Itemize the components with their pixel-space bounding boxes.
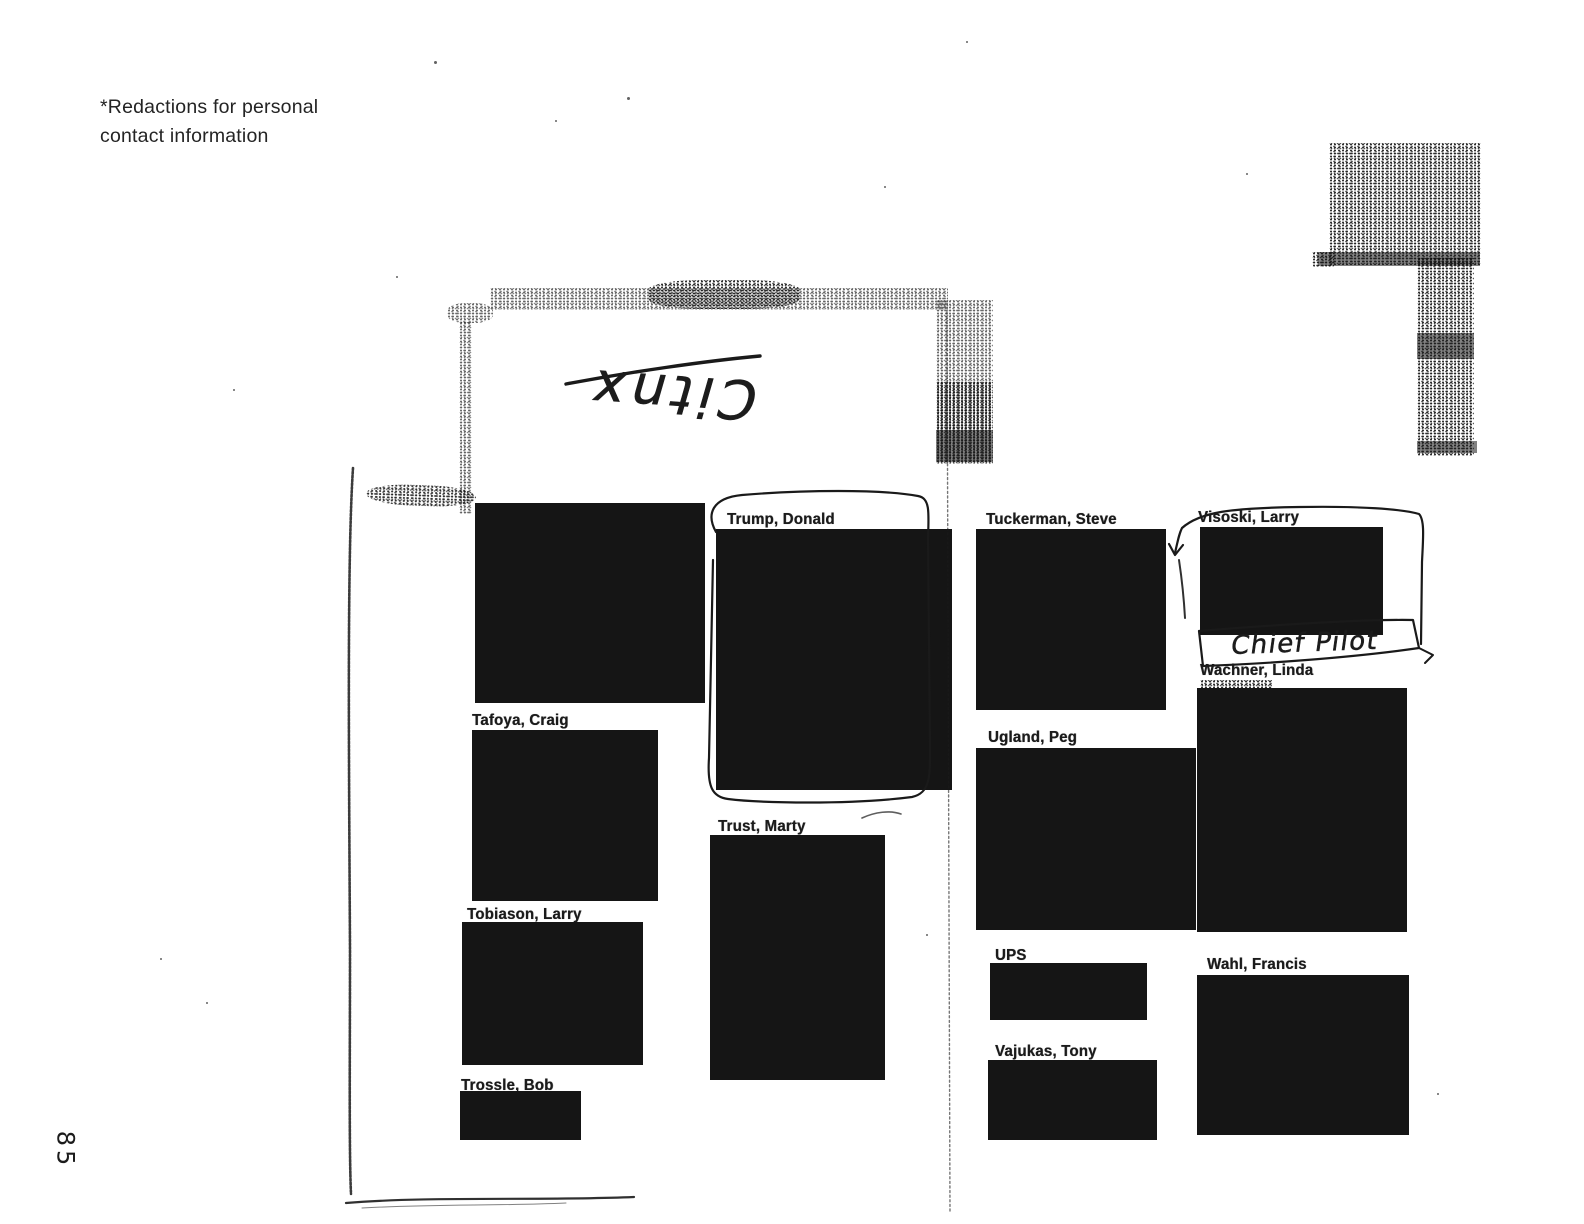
entry-label: Trump, Donald xyxy=(727,511,835,529)
scan-artifact xyxy=(936,430,993,462)
redaction-note: *Redactions for personal contact informa… xyxy=(100,93,390,152)
handwritten-flap-text: Citnx xyxy=(578,358,765,432)
entry-label: Tafoya, Craig xyxy=(472,712,569,730)
scan-speck xyxy=(627,97,630,100)
scan-artifact xyxy=(459,322,472,514)
redaction-box xyxy=(976,529,1166,710)
scan-speck xyxy=(396,276,398,278)
page-bottom-edge-line xyxy=(346,1197,634,1203)
arrow-icon xyxy=(1169,544,1183,555)
arrow-icon xyxy=(1419,648,1433,663)
scan-artifact xyxy=(648,280,800,309)
scan-speck xyxy=(966,41,968,43)
scan-speck xyxy=(884,186,886,188)
scan-speck xyxy=(233,389,235,391)
entry-label: Tuckerman, Steve xyxy=(986,511,1117,529)
page-edge-line xyxy=(349,468,353,1194)
redaction-box xyxy=(1200,527,1383,635)
scan-speck xyxy=(160,958,162,960)
entry-label: Ugland, Peg xyxy=(988,729,1077,747)
scan-artifact xyxy=(1417,441,1477,453)
scan-speck xyxy=(1437,1093,1439,1095)
redaction-box xyxy=(976,748,1196,930)
entry-label: Wachner, Linda xyxy=(1200,662,1313,680)
scan-artifact xyxy=(1417,333,1474,359)
citnx-underline xyxy=(566,356,760,384)
redaction-box xyxy=(472,730,658,901)
visoski-box-annotation xyxy=(1179,560,1185,618)
redaction-box xyxy=(1197,688,1407,932)
scanned-document-page: *Redactions for personal contact informa… xyxy=(0,0,1584,1224)
entry-label: Wahl, Francis xyxy=(1207,956,1307,974)
redaction-box xyxy=(462,922,643,1065)
scan-speck xyxy=(926,934,928,936)
scan-speck xyxy=(206,1002,208,1004)
redaction-box xyxy=(460,1091,581,1140)
redaction-box xyxy=(716,529,952,790)
scan-artifact xyxy=(1312,252,1334,267)
partial-text-sliver xyxy=(1200,680,1272,688)
entry-label: Visoski, Larry xyxy=(1198,509,1299,527)
page-bottom-edge-line xyxy=(362,1203,566,1208)
scan-speck xyxy=(1246,173,1248,175)
scan-speck xyxy=(434,61,437,64)
redaction-box xyxy=(988,1060,1157,1140)
scan-artifact xyxy=(447,303,493,323)
redaction-box xyxy=(475,503,705,703)
scan-speck xyxy=(555,120,557,122)
entry-label: Vajukas, Tony xyxy=(995,1043,1097,1061)
entry-label: Trust, Marty xyxy=(718,818,806,836)
scan-artifact-large xyxy=(1329,143,1481,265)
redaction-box xyxy=(990,963,1147,1020)
page-number: 85 xyxy=(51,1131,79,1170)
redaction-box xyxy=(710,835,885,1080)
pen-squiggle xyxy=(862,812,901,818)
redaction-box xyxy=(1197,975,1409,1135)
